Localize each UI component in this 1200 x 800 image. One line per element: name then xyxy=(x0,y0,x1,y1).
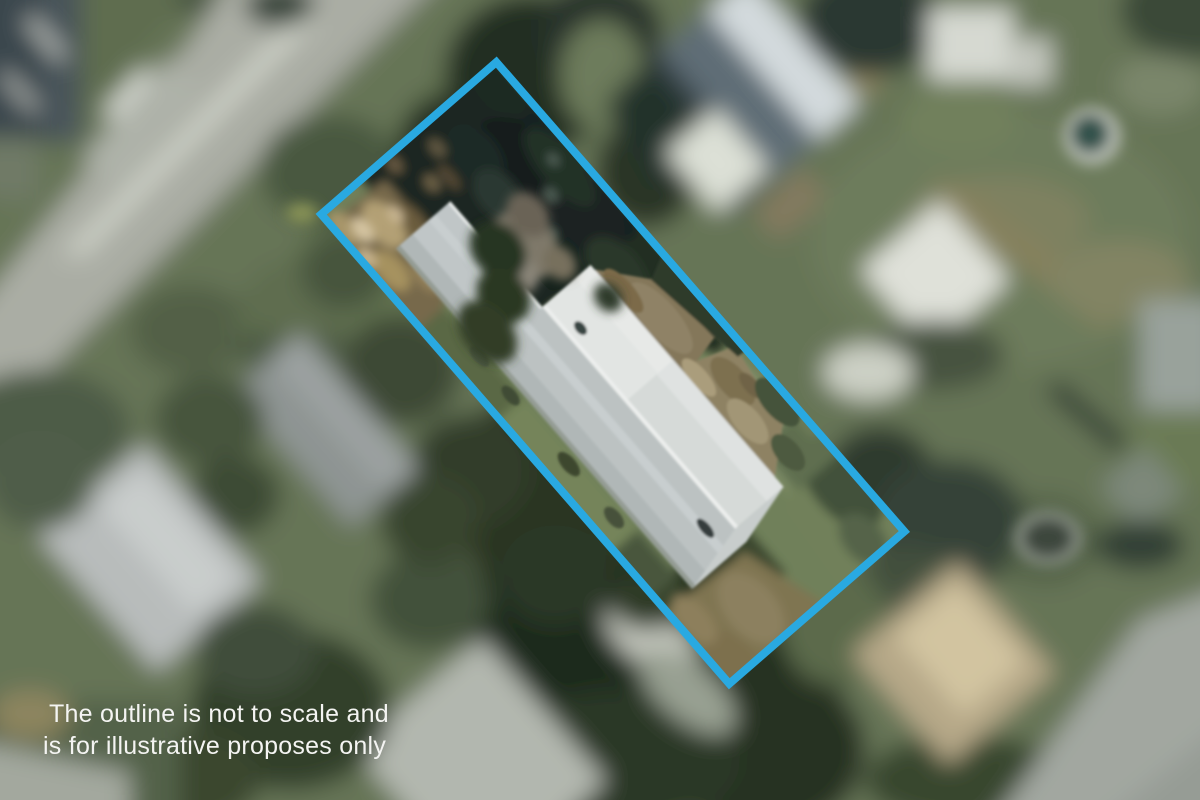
svg-text:The outline is not to scale an: The outline is not to scale and xyxy=(49,700,389,728)
svg-text:is for illustrative proposes o: is for illustrative proposes only xyxy=(43,732,386,760)
